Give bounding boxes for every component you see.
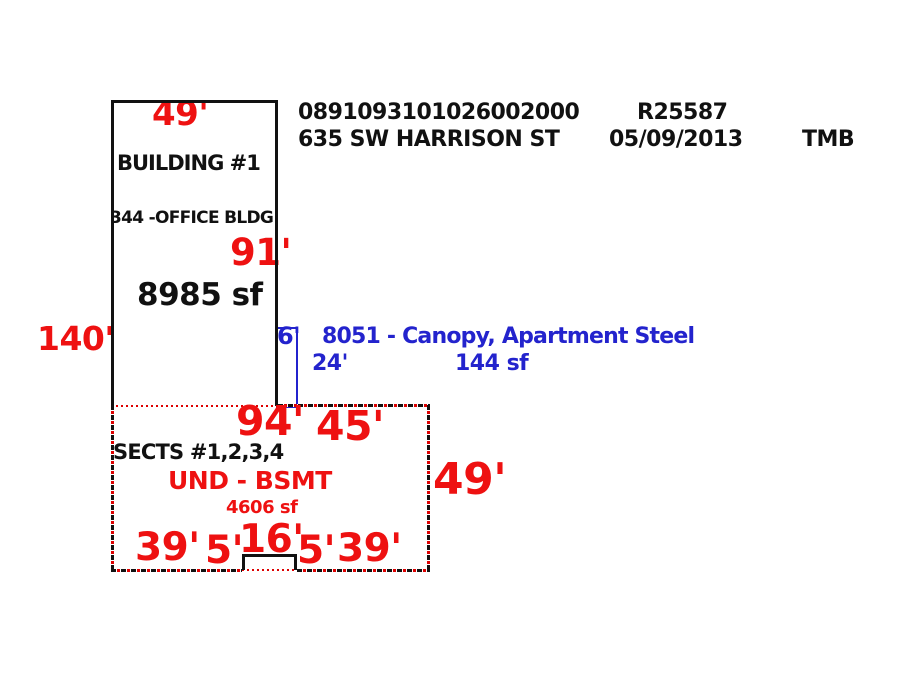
- dim-canopy-width: 6': [277, 324, 300, 348]
- dim-bottom-39-right: 39': [337, 529, 402, 568]
- property-address: 635 SW HARRISON ST: [298, 129, 559, 151]
- dim-basement-right: 49': [433, 458, 506, 502]
- property-sketch-canvas: 0891093101026002000 R25587 635 SW HARRIS…: [0, 0, 900, 675]
- parcel-id: 0891093101026002000: [298, 102, 579, 124]
- sketch-date: 05/09/2013: [609, 129, 743, 151]
- dim-bottom-5-left: 5': [205, 531, 243, 570]
- canopy-label: 8051 - Canopy, Apartment Steel: [322, 326, 694, 348]
- dim-building1-right: 91': [230, 234, 291, 271]
- basement-right-dashed-line: [427, 405, 430, 572]
- canopy-area: 144 sf: [455, 353, 528, 375]
- record-id: R25587: [637, 102, 727, 124]
- dim-basement-top-right: 45': [316, 406, 384, 447]
- dim-bottom-39-left: 39': [135, 528, 200, 567]
- building1-wall-left: [111, 100, 114, 406]
- basement-name: SECTS #1,2,3,4: [113, 442, 283, 463]
- dim-bottom-5-right: 5': [297, 531, 335, 570]
- dim-building1-left: 140': [37, 322, 114, 355]
- dim-bottom-16: 16': [239, 520, 304, 559]
- basement-area: 4606 sf: [226, 499, 297, 517]
- dim-canopy-height: 24': [312, 353, 348, 375]
- dim-basement-top: 94': [236, 401, 304, 442]
- basement-type-label: UND - BSMT: [168, 468, 332, 493]
- building1-wall-top: [111, 100, 278, 103]
- appraiser-initials: TMB: [802, 129, 854, 151]
- building1-type-label: 344 -OFFICE BLDG: [110, 210, 273, 227]
- building1-name: BUILDING #1: [117, 153, 260, 174]
- building1-wall-right: [275, 100, 278, 406]
- basement-left-dashed-line: [111, 405, 114, 572]
- building1-area: 8985 sf: [137, 280, 263, 311]
